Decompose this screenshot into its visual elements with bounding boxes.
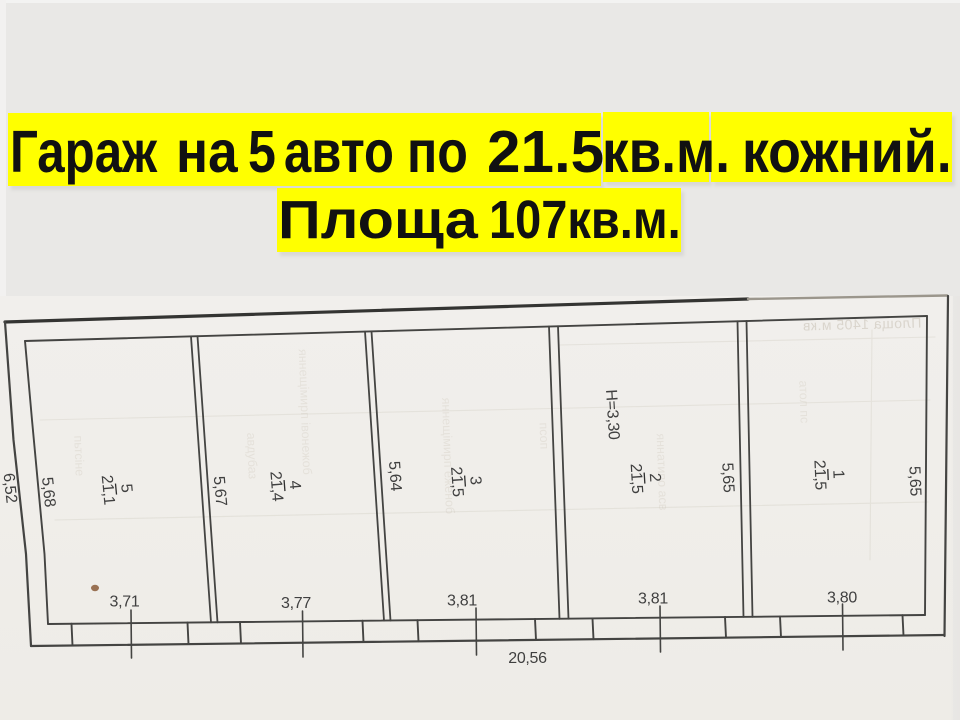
svg-text:3,81: 3,81 [638,591,668,608]
svg-text:21,1: 21,1 [98,474,118,506]
svg-text:1: 1 [829,469,846,479]
svg-text:5: 5 [117,483,135,494]
svg-text:атол пс: атол пс [796,380,811,423]
svg-text:21,5: 21,5 [627,463,646,494]
svg-text:5,67: 5,67 [210,475,230,507]
svg-text:5,65: 5,65 [718,462,737,493]
svg-text:Н=3,30: Н=3,30 [602,389,622,441]
svg-text:3: 3 [466,475,484,485]
svg-text:5,68: 5,68 [38,476,58,508]
svg-text:3,81: 3,81 [447,593,477,610]
svg-text:авдубаз: авдубаз [244,432,260,479]
svg-text:6,52: 6,52 [0,472,20,504]
svg-text:3,71: 3,71 [110,594,140,611]
svg-text:Площа 1405 м.кв: Площа 1405 м.кв [802,314,921,333]
svg-text:3,77: 3,77 [281,595,311,612]
svg-text:яннещімирп еженоб: яннещімирп еженоб [439,397,457,514]
svg-text:20,56: 20,56 [508,650,547,667]
svg-text:4: 4 [286,480,304,490]
svg-text:21,4: 21,4 [266,471,285,503]
svg-text:пьтсіне: пьтсіне [71,435,86,476]
svg-text:5,65: 5,65 [905,466,923,497]
svg-text:5,64: 5,64 [385,461,404,492]
svg-text:3,80: 3,80 [827,590,857,607]
svg-text:21,5: 21,5 [810,460,828,491]
svg-text:яннещімирп івонежоб: яннещімирп івонежоб [296,349,314,475]
svg-text:яннатипо асв: яннатипо асв [654,433,671,511]
svg-text:псоп: псоп [537,422,552,449]
